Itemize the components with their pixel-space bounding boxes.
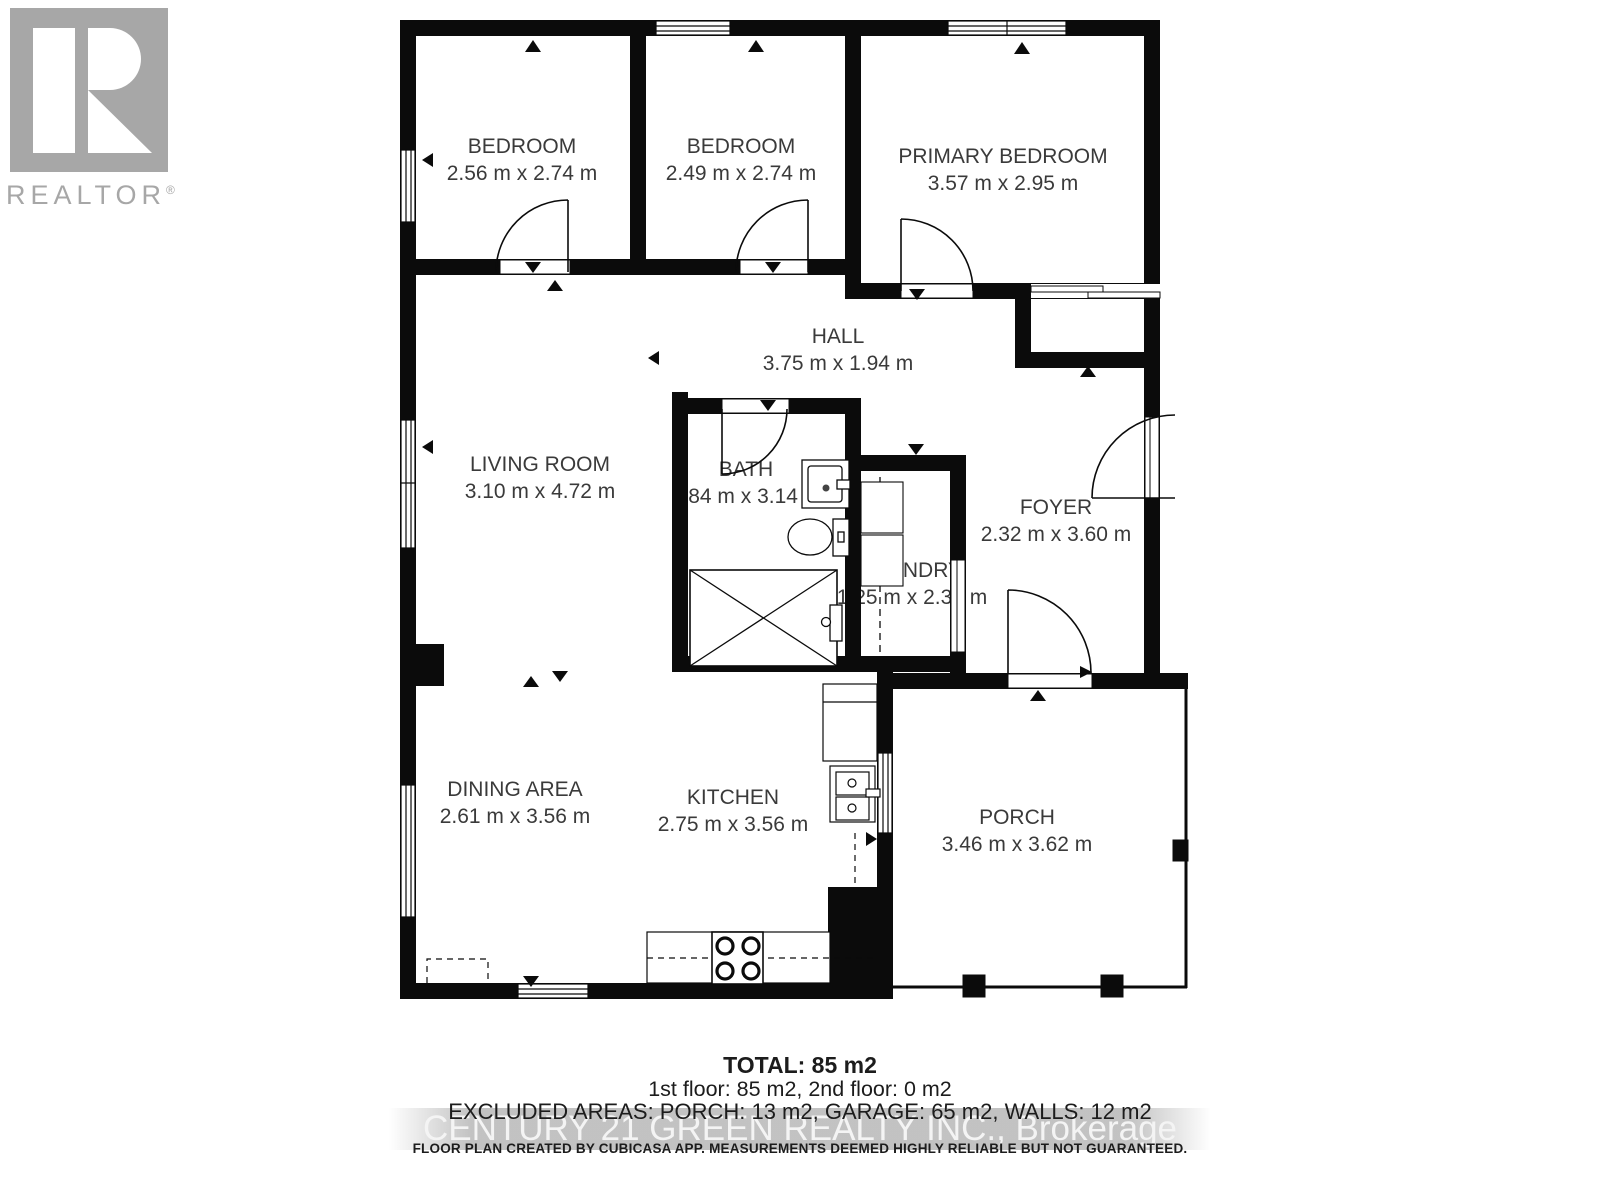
room-dims: 2.75 m x 3.56 m xyxy=(658,811,809,838)
room-name: DINING AREA xyxy=(440,776,591,803)
room-name: LIVING ROOM xyxy=(465,451,616,478)
room-label-hall: HALL 3.75 m x 1.94 m xyxy=(763,323,914,377)
room-label-primary-bedroom: PRIMARY BEDROOM 3.57 m x 2.95 m xyxy=(898,143,1107,197)
excluded-areas-text: EXCLUDED AREAS: PORCH: 13 m2, GARAGE: 65… xyxy=(0,1099,1600,1125)
room-label-kitchen: KITCHEN 2.75 m x 3.56 m xyxy=(658,784,809,838)
room-label-foyer: FOYER 2.32 m x 3.60 m xyxy=(981,494,1132,548)
registered-mark: ® xyxy=(166,183,175,197)
room-name: HALL xyxy=(763,323,914,350)
room-dims: 3.46 m x 3.62 m xyxy=(942,831,1093,858)
room-dims: 3.57 m x 2.95 m xyxy=(898,170,1107,197)
room-name: BEDROOM xyxy=(666,133,817,160)
room-dims: 2.32 m x 3.60 m xyxy=(981,521,1132,548)
room-name: KITCHEN xyxy=(658,784,809,811)
room-labels: BEDROOM 2.56 m x 2.74 m BEDROOM 2.49 m x… xyxy=(0,0,1600,1200)
room-dims: 1.25 m x 2.36 m xyxy=(837,584,988,611)
room-dims: 2.56 m x 2.74 m xyxy=(447,160,598,187)
room-label-bedroom-1: BEDROOM 2.56 m x 2.74 m xyxy=(447,133,598,187)
room-name: BEDROOM xyxy=(447,133,598,160)
room-name: BATH xyxy=(671,456,822,483)
room-label-bedroom-2: BEDROOM 2.49 m x 2.74 m xyxy=(666,133,817,187)
room-label-porch: PORCH 3.46 m x 3.62 m xyxy=(942,804,1093,858)
room-label-laundry: LAUNDRY 1.25 m x 2.36 m xyxy=(837,557,988,611)
room-dims: 2.49 m x 2.74 m xyxy=(666,160,817,187)
disclaimer-text: FLOOR PLAN CREATED BY CUBICASA APP. MEAS… xyxy=(0,1141,1600,1156)
realtor-wordmark: REALTOR® xyxy=(6,180,186,211)
room-dims: 3.75 m x 1.94 m xyxy=(763,350,914,377)
room-dims: 2.61 m x 3.56 m xyxy=(440,803,591,830)
room-name: LAUNDRY xyxy=(837,557,988,584)
room-name: PRIMARY BEDROOM xyxy=(898,143,1107,170)
realtor-logo xyxy=(10,8,170,178)
room-label-dining-area: DINING AREA 2.61 m x 3.56 m xyxy=(440,776,591,830)
room-dims: 3.10 m x 4.72 m xyxy=(465,478,616,505)
total-area-text: TOTAL: 85 m2 xyxy=(0,1052,1600,1079)
room-name: PORCH xyxy=(942,804,1093,831)
room-label-living-room: LIVING ROOM 3.10 m x 4.72 m xyxy=(465,451,616,505)
room-dims: 1.84 m x 3.14 m xyxy=(671,483,822,510)
floor-plan-page: BEDROOM 2.56 m x 2.74 m BEDROOM 2.49 m x… xyxy=(0,0,1600,1200)
room-label-bath: BATH 1.84 m x 3.14 m xyxy=(671,456,822,510)
room-name: FOYER xyxy=(981,494,1132,521)
